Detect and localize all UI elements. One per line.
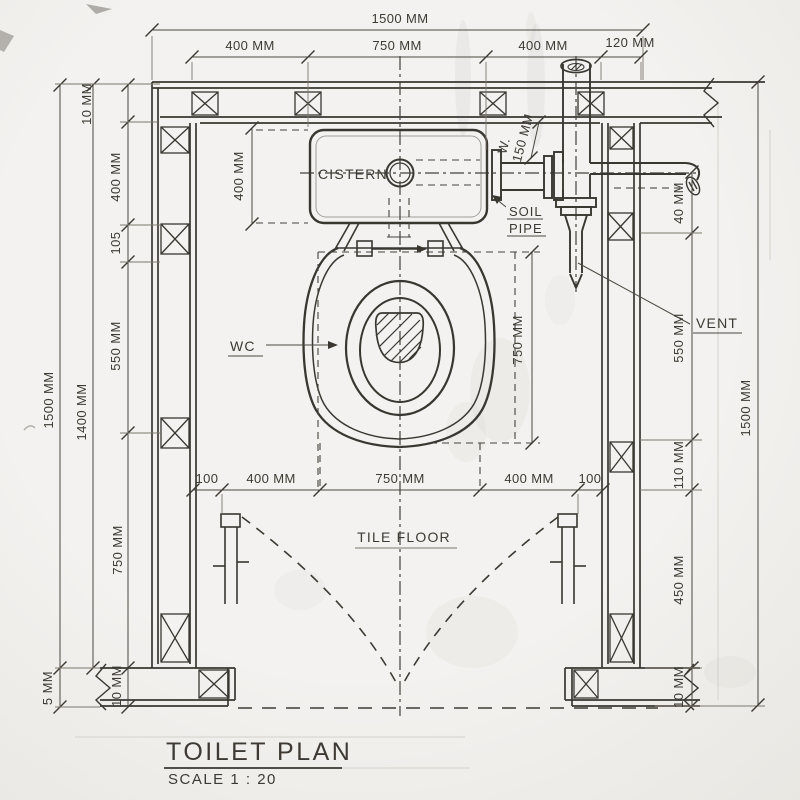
stud: [199, 670, 229, 698]
dim-right-outer-label: 1500 MM: [738, 380, 753, 437]
dim-top-seg1: 400 MM: [225, 38, 274, 53]
blueprint-sheet: CISTERN WC: [0, 0, 800, 800]
dim-floor-750: 750 MM: [375, 471, 424, 486]
soil-pipe-callout: SOIL PIPE: [492, 195, 546, 236]
stud: [610, 442, 633, 472]
dim-right-40mm: 40 MM: [671, 182, 686, 224]
wc-label: WC: [230, 338, 256, 354]
dim-floor-400R: 400 MM: [504, 471, 553, 486]
wc-callout: WC: [228, 338, 338, 356]
stud: [480, 92, 506, 115]
dim-top-total-label: 1500 MM: [372, 11, 429, 26]
stud: [161, 418, 189, 448]
dim-top-seg3: 400 MM: [518, 38, 567, 53]
plumbing: [492, 60, 702, 289]
cistern-label: CISTERN: [318, 166, 388, 182]
left-wall: [152, 82, 196, 668]
dim-left-105: 105: [108, 232, 123, 255]
soil-pipe-flange: [492, 150, 501, 200]
stud: [192, 92, 218, 115]
dim-top-seg4: 120 MM: [605, 35, 654, 50]
stud: [574, 670, 598, 698]
stud: [608, 213, 633, 240]
wall-break-right-top: [704, 78, 718, 127]
dim-cistern-height: 400 MM: [231, 122, 259, 231]
dim-left-10mm-bottom: 10 MM: [109, 665, 124, 707]
stud: [161, 614, 189, 662]
dim-wc-depth-label: 750 MM: [510, 315, 525, 364]
right-wall: [602, 123, 640, 668]
dim-left-400mm: 400 MM: [108, 152, 123, 201]
dim-right-10mm: 10 MM: [671, 666, 686, 708]
drawing-title: TOILET PLAN: [166, 738, 352, 766]
dim-left-outer: 1500 MM 5 MM: [40, 79, 67, 714]
stud: [161, 127, 189, 153]
dim-top-seg2: 750 MM: [372, 38, 421, 53]
dim-left-10mm-top: 10 MM: [79, 83, 94, 125]
dim-right-450mm: 450 MM: [671, 555, 686, 604]
stud: [161, 224, 189, 254]
dim-left-750mm: 750 MM: [110, 525, 125, 574]
soil-pipe-label-2: PIPE: [509, 221, 543, 236]
left-door-post: [221, 514, 240, 527]
dim-left-outer-label: 1500 MM: [41, 372, 56, 429]
dim-left-chain: 10 MM 400 MM 105 550 MM 750 MM 10 MM: [55, 79, 160, 714]
tile-floor-label: TILE FLOOR: [357, 529, 451, 545]
dim-floor-row: 100 400 MM 750 MM 400 MM 100: [187, 471, 610, 514]
cistern: CISTERN: [310, 130, 487, 237]
dim-floor-100L: 100: [196, 471, 219, 486]
dim-right-chain: 40 MM 550 MM 110 MM 450 MM 10 MM: [640, 166, 765, 713]
dim-right-110mm: 110 MM: [671, 441, 686, 489]
wall-break-left-bottom: [96, 664, 110, 710]
dim-left-bottom-label: 5 MM: [40, 671, 55, 705]
soil-pipe-label-1: SOIL: [509, 204, 543, 219]
stud: [610, 614, 633, 662]
stud: [610, 127, 633, 149]
dim-right-550mm: 550 MM: [671, 313, 686, 362]
wall-break-right-bottom: [684, 664, 698, 710]
right-door-post: [558, 514, 577, 527]
title-block: TOILET PLAN SCALE 1 : 20: [164, 738, 470, 788]
tile-floor-callout: TILE FLOOR: [355, 529, 457, 548]
dim-left-inner-label: 1400 MM: [74, 384, 89, 441]
toilet-plan-drawing: CISTERN WC: [0, 0, 800, 800]
dim-left-inner: 1400 MM: [74, 79, 100, 675]
drawing-scale: SCALE 1 : 20: [168, 771, 277, 788]
dim-right-outer: 1500 MM: [738, 76, 765, 712]
dim-floor-100R: 100: [579, 471, 602, 486]
dim-left-550mm: 550 MM: [108, 321, 123, 370]
dim-floor-400L: 400 MM: [246, 471, 295, 486]
stud: [578, 92, 604, 115]
vent-label: VENT: [696, 315, 738, 331]
wc-arrow: [328, 341, 338, 349]
dim-cistern-height-label: 400 MM: [231, 151, 246, 200]
